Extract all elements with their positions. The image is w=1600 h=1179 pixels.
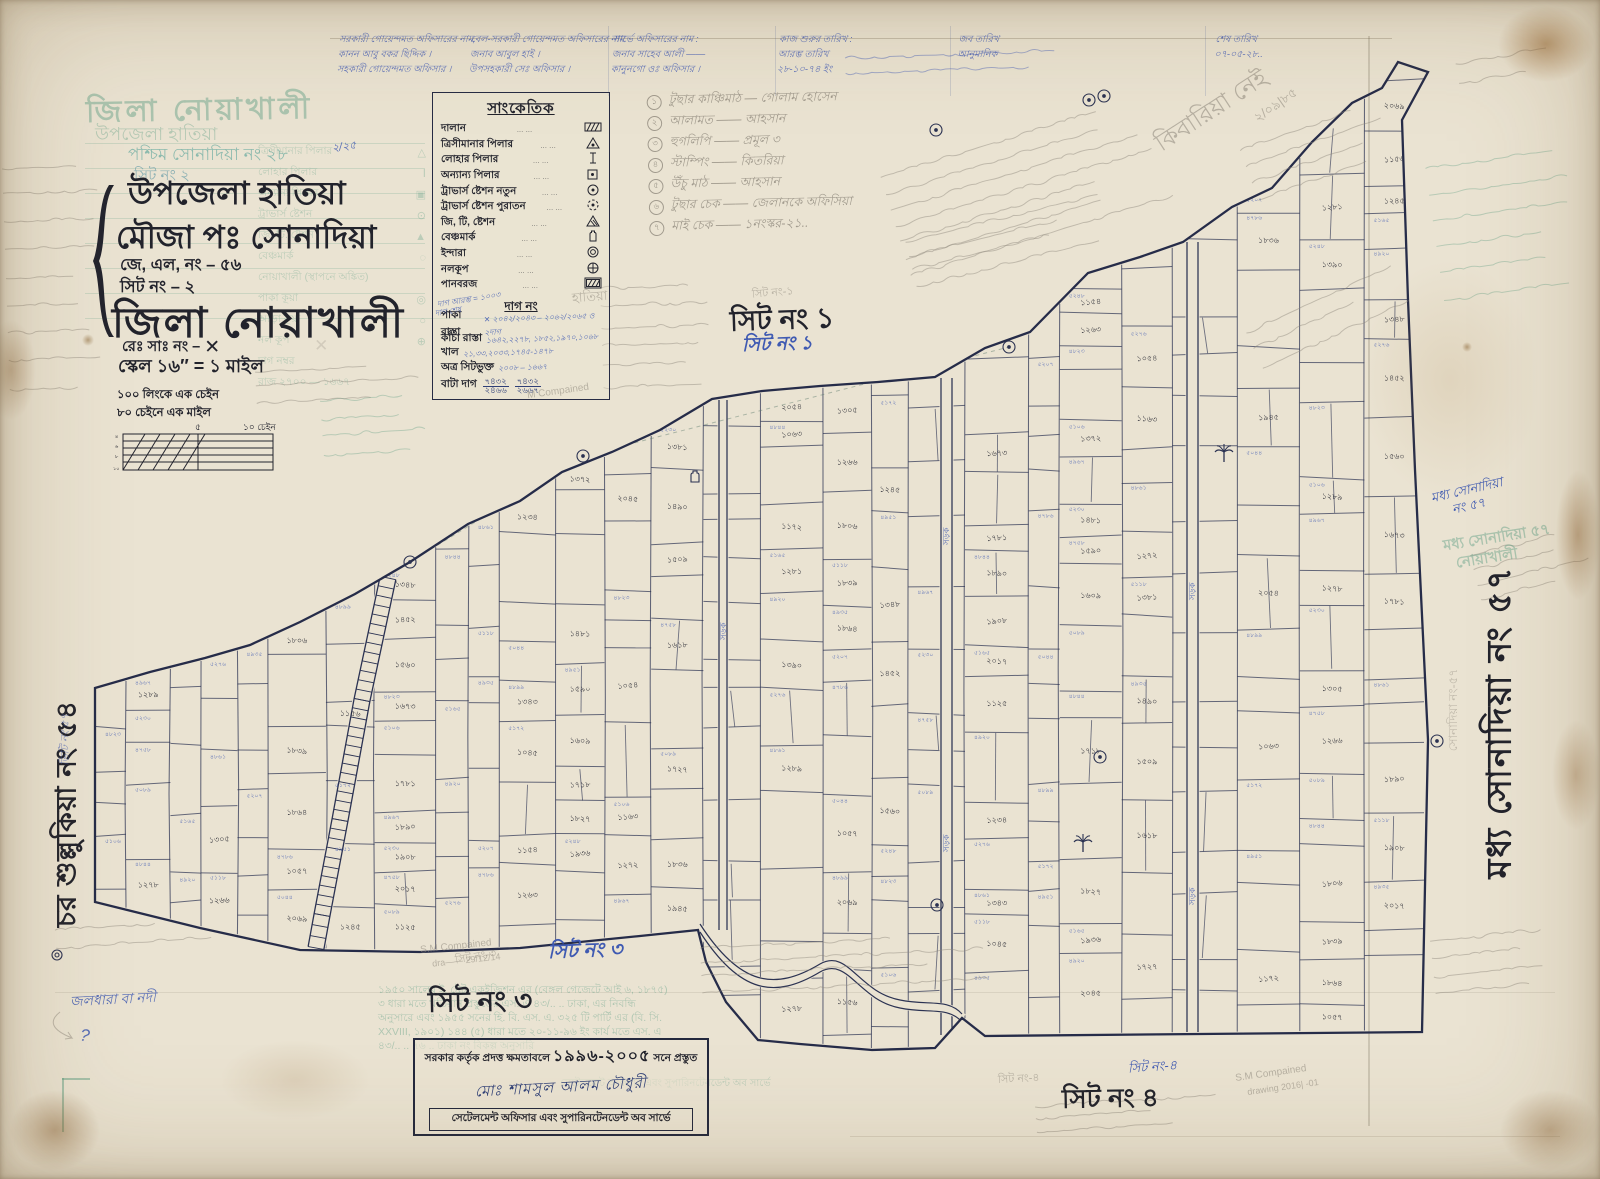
table-cell-text: ০৭-০৫-২৮.. [1214, 47, 1264, 62]
svg-text:১২৭২: ১২৭২ [617, 860, 638, 870]
svg-text:১২৭৮: ১২৭৮ [138, 880, 160, 889]
svg-text:৫২৪৮: ৫২৪৮ [1309, 243, 1325, 250]
svg-text:৫১৭২: ৫১৭২ [1038, 863, 1054, 870]
table-divider [775, 26, 776, 96]
svg-text:৪৯৫১: ৪৯৫১ [880, 514, 896, 521]
svg-text:৫০৪৪: ৫০৪৪ [1038, 653, 1054, 660]
table-column: জব তারিখআনুমানিক [957, 32, 1000, 62]
svg-text:১৩৯০: ১৩৯০ [1322, 260, 1343, 270]
svg-text:১৩০৫: ১৩০৫ [209, 834, 230, 844]
table-cell-text: ২৮-১০-৭৪ ইং [776, 62, 850, 77]
legend-dots: ... ... [513, 141, 583, 150]
svg-text:সড়ক: সড়ক [1187, 886, 1197, 906]
svg-text:১১৭২: ১১৭২ [1258, 973, 1279, 984]
svg-text:৫২৭৬: ৫২৭৬ [974, 841, 990, 848]
svg-text:১৯০৮: ১৯০৮ [395, 852, 417, 862]
svg-text:৪৮৯৯: ৪৮৯৯ [1038, 787, 1054, 794]
svg-text:১৮২৭: ১৮২৭ [1080, 886, 1101, 897]
legend-item-label: নলকূপ [441, 262, 469, 279]
circle-dot-icon [577, 450, 589, 462]
bata-fraction: ৭৪৩২২৪৬৬ [483, 377, 509, 394]
svg-text:৫১৬৫: ৫১৬৫ [1069, 928, 1085, 935]
svg-text:৪৯২০: ৪৯২০ [1069, 958, 1085, 965]
svg-text:১৫০৯: ১৫০৯ [1137, 757, 1158, 766]
svg-text:১৮৯০: ১৮৯০ [986, 568, 1007, 578]
svg-text:৫২৪৮: ৫২৪৮ [565, 838, 581, 845]
svg-text:৪৮৯৯: ৪৮৯৯ [832, 874, 848, 881]
iron-pillar-icon [583, 151, 603, 165]
pencil-list-item: ৭মাই চেক —— ১নংস্কর-২১.. [649, 214, 853, 239]
svg-text:৫২৩০: ৫২৩০ [384, 845, 400, 852]
svg-text:১৬৭৩: ১৬৭৩ [986, 448, 1007, 458]
double-circle-icon [583, 245, 603, 259]
svg-text:৪৮২৩: ৪৮২৩ [105, 731, 121, 738]
svg-text:৫১০৬: ৫১০৬ [1069, 424, 1085, 431]
scale-bar: ৫ ১০ চেইন ৪৬৮১০ [105, 420, 295, 480]
svg-text:১২৪৫: ১২৪৫ [340, 923, 361, 932]
svg-text:৪৮৬১: ৪৮৬১ [974, 892, 990, 899]
svg-text:১৩৪৩: ১৩৪৩ [986, 898, 1007, 907]
svg-text:১০৫৭: ১০৫৭ [286, 867, 307, 876]
svg-text:১৮৩৯: ১৮৩৯ [286, 745, 307, 756]
svg-text:১৬১৮: ১৬১৮ [1136, 831, 1158, 841]
svg-text:৪৭৮৬: ৪৭৮৬ [277, 853, 293, 860]
svg-text:১০: ১০ [113, 466, 120, 472]
svg-text:৫১১৮: ৫১১৮ [210, 875, 226, 882]
legend-item-label: ট্রাভার্স ষ্টেশন নতুন [441, 184, 516, 201]
list-number-badge: ৫ [648, 178, 663, 193]
sheet-3-label: সিট নং ৩ [428, 979, 533, 1028]
list-number-badge: ৬ [649, 199, 664, 214]
svg-text:১৯০৮: ১৯০৮ [1384, 843, 1406, 853]
svg-text:১৩৮১: ১৩৮১ [667, 442, 688, 452]
svg-text:৫১৬৫: ৫১৬৫ [179, 818, 195, 825]
svg-text:৫২০৭: ৫২০৭ [832, 653, 848, 660]
legend-item-label: পানবরজ [441, 277, 477, 294]
svg-text:৫১০৬: ৫১০৬ [384, 724, 400, 731]
svg-text:১২৭৮: ১২৭৮ [781, 1004, 803, 1014]
table-column: বেল-সরকারী গোয়েন্দমত অফিসারের নামজনাব আ… [468, 32, 624, 77]
svg-text:৪: ৪ [115, 434, 118, 440]
svg-text:৫০৪৪: ৫০৪৪ [832, 798, 848, 805]
right-margin-pencil-note: সোনাদিয়া নং-৫৭ [1445, 635, 1465, 785]
svg-text:৫১৬৫: ৫১৬৫ [974, 649, 990, 656]
svg-text:৪৮৪৪: ৪৮৪৪ [769, 424, 785, 431]
svg-text:১২৮৯: ১২৮৯ [781, 763, 802, 773]
svg-text:৪৯২০: ৪৯২০ [1373, 251, 1389, 258]
svg-text:১৯০৮: ১৯০৮ [986, 616, 1008, 626]
svg-text:১৬০৯: ১৬০৯ [1080, 591, 1101, 601]
svg-text:১২৭৮: ১২৭৮ [1321, 583, 1343, 594]
svg-text:১৩৪৮: ১৩৪৮ [394, 580, 416, 591]
svg-text:৪৮৪৪: ৪৮৪৪ [445, 553, 461, 560]
svg-text:৫১৭২: ৫১৭২ [508, 725, 524, 732]
circle-dashed-icon [583, 198, 603, 212]
svg-text:৫২৭৬: ৫২৭৬ [210, 661, 226, 668]
svg-text:৫১৭২: ৫১৭২ [880, 400, 896, 407]
svg-text:৫২৭৬: ৫২৭৬ [1373, 342, 1389, 349]
svg-text:১০৪৫: ১০৪৫ [986, 939, 1007, 949]
legend-item-label: দালান [441, 121, 466, 138]
svg-text:১৪৫২: ১৪৫২ [1384, 374, 1405, 383]
list-number-badge: ১ [647, 94, 662, 109]
legend-dots: ... ... [526, 203, 583, 212]
svg-text:১৩৭২: ১৩৭২ [569, 474, 590, 484]
svg-text:৪৯৩৫: ৪৯৩৫ [832, 609, 848, 616]
svg-text:১৮৩৬: ১৮৩৬ [1258, 236, 1279, 246]
svg-text:৪৯৫১: ৪৯৫১ [1246, 853, 1262, 860]
svg-text:৪৮৯৯: ৪৮৯৯ [1246, 632, 1262, 639]
svg-text:৬: ৬ [115, 444, 119, 450]
benchmark-icon [691, 471, 699, 482]
table-cell-text: জনাব আবুল হাই । [469, 47, 623, 62]
legend-item-label: লোহার পিলার [441, 152, 498, 169]
scale-bar-mid-label: ৫ [195, 422, 201, 432]
svg-text:৪৯৬৭: ৪৯৬৭ [613, 897, 629, 904]
benchmark-icon [583, 229, 603, 243]
svg-text:৫২৩০: ৫২৩০ [1069, 506, 1085, 513]
svg-text:৪৯৩৫: ৪৯৩৫ [1373, 884, 1389, 891]
table-divider [950, 26, 951, 96]
svg-text:৪৮২৩: ৪৮২৩ [384, 693, 400, 700]
svg-text:১২৬৩: ১২৬৩ [517, 890, 538, 900]
list-number-badge: ৩ [647, 136, 662, 151]
svg-text:৪৭৫৮: ৪৭৫৮ [135, 746, 151, 753]
svg-text:১৮৩৯: ১৮৩৯ [837, 578, 858, 588]
circle-dot-icon [583, 183, 603, 197]
circle-cross-icon [583, 261, 603, 275]
dag-row-value: ২০০৮ – ১৬৬৭ [498, 361, 548, 376]
bata-dag-label: বাটা দাগ [441, 377, 477, 394]
svg-text:৫১০৬: ৫১০৬ [613, 801, 629, 808]
stamp-line1-pre: সরকার কর্তৃক প্রদত্ত ক্ষমতাবলে [425, 1052, 550, 1064]
svg-text:৫০৮৯: ৫০৮৯ [917, 789, 933, 796]
svg-text:১৭২৭: ১৭২৭ [1136, 962, 1157, 972]
legend-items: দালান... ...ত্রিসীমানার পিলার... ...লোহা… [433, 122, 609, 294]
svg-text:৫১১৮: ৫১১৮ [1373, 817, 1389, 824]
svg-text:৫২৩০: ৫২৩০ [1309, 607, 1325, 614]
svg-text:৫২০৭: ৫২০৭ [246, 792, 262, 799]
annotation: সিট নং-১ [751, 282, 794, 305]
svg-text:৪৮৬১: ৪৮৬১ [769, 747, 785, 754]
svg-text:১২৪৫: ১২৪৫ [1384, 196, 1405, 205]
dag-row-label: অত্র সিটভুক্ত [441, 360, 494, 377]
svg-text:৫০৮৯: ৫০৮৯ [135, 787, 151, 794]
title-scale: স্কেল ১৬″ = ১ মাইল [118, 352, 264, 383]
officer-signature: মোঃ শামসুল আলম চৌধুরী [415, 1068, 708, 1108]
svg-text:১২৩৪: ১২৩৪ [986, 815, 1007, 824]
legend-dots: ... ... [466, 125, 583, 134]
dag-row: কাঁচা রাস্তা১৬৪২,২২৭৮, ১৮৫২,১৯৭০,১০৬৮ [433, 332, 609, 347]
svg-text:৫১৬৫: ৫১৬৫ [769, 552, 785, 559]
svg-text:১২৭২: ১২৭২ [1136, 550, 1158, 561]
annotation: জলধারা বা নদী [69, 986, 156, 1014]
svg-text:৫০৮৯: ৫০৮৯ [1069, 629, 1085, 636]
svg-text:৫১৭২: ৫১৭২ [1246, 782, 1262, 789]
svg-text:১৪৮১: ১৪৮১ [570, 629, 591, 638]
svg-text:৫২৩০: ৫২৩০ [135, 715, 151, 722]
svg-text:৪৯২০: ৪৯২০ [769, 596, 785, 603]
stamp-line-1: সরকার কর্তৃক প্রদত্ত ক্ষমতাবলে ১৯৯৬-২০০৫… [415, 1043, 707, 1070]
svg-text:১১৬৩: ১১৬৩ [617, 812, 638, 822]
left-margin-blue-note: ভিটি নং ৫৭ [57, 713, 76, 765]
svg-text:২০৬৯: ২০৬৯ [286, 914, 307, 924]
sheet-4-label-pencil: সিট নং-৪ [998, 1069, 1041, 1090]
svg-text:৪৯৬৭: ৪৯৬৭ [917, 589, 933, 596]
svg-text:১৮৩৬: ১৮৩৬ [667, 860, 688, 869]
svg-text:৪৭৫৮: ৪৭৫৮ [1069, 540, 1085, 547]
table-column: শেষ তারিখ০৭-০৫-২৮.. [1214, 32, 1265, 62]
svg-text:৫০৪৪: ৫০৪৪ [508, 644, 524, 651]
svg-text:৫১৬৫: ৫১৬৫ [445, 705, 461, 712]
list-number-badge: ৭ [649, 220, 664, 235]
svg-text:৫০৮৯: ৫০৮৯ [660, 750, 676, 757]
svg-text:১৫৯০: ১৫৯০ [570, 685, 591, 694]
svg-text:২০১৭: ২০১৭ [1384, 901, 1405, 911]
svg-text:৪৯৫১: ৪৯৫১ [335, 846, 351, 853]
scale-bar-right-label: ১০ চেইন [243, 422, 276, 432]
svg-text:১৮৯০: ১৮৯০ [1384, 774, 1405, 784]
svg-text:১১২৫: ১১২৫ [395, 922, 416, 932]
reg-cross-mark-faint: ✕ [314, 336, 328, 355]
svg-text:১৫৬০: ১৫৬০ [879, 806, 900, 816]
svg-text:১০৫৭: ১০৫৭ [837, 829, 858, 839]
road-labels: সড়কসড়কসড়কসড়কসড়ক [718, 526, 1197, 906]
svg-text:১১২৫: ১১২৫ [986, 699, 1007, 708]
svg-text:৪৯৫১: ৪৯৫১ [565, 667, 581, 674]
dag-row-value: ২১,৩৩,২০৩৩,১৭৪৫-১৪৭৮ [462, 346, 553, 362]
legend-dots: ... ... [475, 234, 583, 243]
svg-text:৪৮৬১: ৪৮৬১ [210, 753, 226, 760]
svg-text:১৭৮১: ১৭৮১ [1384, 596, 1405, 606]
legend-item-label: অন্যান্য পিলার [441, 168, 500, 185]
svg-text:৫১১৮: ৫১১৮ [832, 562, 848, 569]
sheet-1-label-blue: সিট নং ১ [741, 329, 813, 363]
svg-text:৪৭৫৮: ৪৭৫৮ [384, 874, 400, 881]
palm-icon [1215, 444, 1233, 462]
svg-text:সড়ক: সড়ক [718, 621, 728, 641]
svg-text:১০৫৭: ১০৫৭ [1322, 1012, 1343, 1022]
svg-text:২০১৭: ২০১৭ [986, 656, 1007, 667]
svg-text:৫২৭৬: ৫২৭৬ [445, 899, 461, 906]
svg-text:৫২৪৮: ৫২৪৮ [880, 847, 896, 854]
svg-text:১১৫৬: ১১৫৬ [1384, 154, 1405, 164]
legend-dots: ... ... [500, 172, 583, 181]
svg-text:১১৭২: ১১৭২ [781, 522, 802, 533]
svg-text:১২৪৫: ১২৪৫ [879, 485, 900, 495]
svg-text:৪৮২৩: ৪৮২৩ [880, 878, 896, 885]
svg-text:২০৬৯: ২০৬৯ [837, 898, 858, 907]
triangle-dot-icon [583, 136, 603, 150]
legend-dots: ... ... [516, 188, 583, 197]
table-cell-text: শেষ তারিখ [1215, 32, 1265, 47]
svg-text:৫১১৮: ৫১১৮ [974, 918, 990, 925]
svg-text:১৫৬০: ১৫৬০ [1384, 452, 1405, 462]
svg-text:১২৩৪: ১২৩৪ [517, 512, 538, 522]
svg-text:১৩৪৮: ১৩৪৮ [1384, 315, 1406, 325]
chain-note-1: ১০০ লিংকে এক চেইন [117, 386, 219, 405]
table-column: সরকারী গোয়েন্দমত অফিসারের নাম,কানন আবু … [336, 32, 476, 77]
table-divider [1205, 26, 1206, 96]
circle-dot-icon [1003, 341, 1015, 353]
legend-item-label: ত্রিসীমানার পিলার [441, 137, 513, 154]
svg-text:৪৭৫৮: ৪৭৫৮ [1309, 710, 1325, 717]
svg-text:১৩৭২: ১৩৭২ [1080, 434, 1101, 444]
svg-text:১৮৯০: ১৮৯০ [395, 822, 416, 832]
svg-text:১০৬৩: ১০৬৩ [1258, 741, 1279, 751]
svg-text:১৫৯০: ১৫৯০ [1080, 546, 1101, 556]
svg-text:৪৯৩৫: ৪৯৩৫ [1131, 681, 1147, 688]
svg-text:২০৪৫: ২০৪৫ [617, 494, 638, 504]
sheet-3-label-blue: সিট নং ৩ [547, 935, 623, 971]
table-cell-text: আনুমানিক [957, 47, 999, 62]
svg-text:৪৮২৩: ৪৮২৩ [613, 595, 629, 602]
svg-text:১৬৭৩: ১৬৭৩ [1384, 530, 1405, 540]
svg-text:১৫৬০: ১৫৬০ [395, 660, 416, 670]
svg-text:১৮৩৯: ১৮৩৯ [1322, 937, 1343, 947]
svg-text:১৩০৫: ১৩০৫ [1322, 684, 1343, 694]
svg-text:৫২০৭: ৫২০৭ [1038, 361, 1054, 368]
svg-text:৫২৭৬: ৫২৭৬ [769, 692, 785, 699]
svg-text:৪৭৮৬: ৪৭৮৬ [1246, 215, 1262, 222]
svg-text:১২৬৬: ১২৬৬ [1322, 736, 1343, 745]
svg-text:১৪৮১: ১৪৮১ [1080, 515, 1101, 525]
svg-text:৪৯৩৫: ৪৯৩৫ [478, 680, 494, 687]
table-cell-text: সহকারী গোয়েন্দমত অফিসার । [336, 62, 474, 77]
pencil-numbered-list: ১টুছার কাঞ্চিমাঠ — গোলাম হোসেন২আলামত —— … [646, 88, 852, 239]
svg-text:৪৮৪৪: ৪৮৪৪ [1309, 822, 1325, 829]
svg-text:১২৬৩: ১২৬৩ [1080, 325, 1101, 335]
stamp-line-2: সেটেলমেন্ট অফিসার এবং সুপারিনটেনডেন্ট অব… [429, 1108, 693, 1131]
circle-dot-icon [930, 124, 942, 136]
svg-text:৪৯৬৭: ৪৯৬৭ [135, 680, 151, 687]
svg-text:১৭২৭: ১৭২৭ [667, 764, 688, 774]
svg-text:৫১০৬: ৫১০৬ [880, 972, 896, 979]
list-number-badge: ২ [647, 115, 662, 130]
dag-row: অত্র সিটভুক্ত২০০৮ – ১৬৬৭ [433, 361, 609, 376]
svg-text:৪৯২০: ৪৯২০ [179, 877, 195, 884]
svg-text:১৮২৭: ১৮২৭ [569, 814, 590, 824]
svg-text:১১৬৩: ১১৬৩ [1136, 414, 1157, 425]
svg-text:৪৯৬৭: ৪৯৬৭ [1309, 517, 1325, 524]
svg-text:৫১৭২: ৫১৭২ [335, 782, 351, 789]
svg-text:৪৮২৩: ৪৮২৩ [1069, 348, 1085, 355]
svg-text:৫০৪৪: ৫০৪৪ [1246, 449, 1262, 456]
svg-text:১৮৬৪: ১৮৬৪ [286, 808, 307, 817]
legend-dots: ... ... [469, 266, 583, 275]
svg-text:১২৮৯: ১২৮৯ [138, 690, 159, 699]
square-dot-icon [583, 167, 603, 181]
table-cell-text: জব তারিখ [958, 32, 1000, 47]
legend-title: সাংকেতিক [433, 97, 609, 122]
svg-text:১৪৯০: ১৪৯০ [1136, 696, 1157, 706]
table-cell-text: সার্ভে অফিসারের নাম : [613, 32, 707, 47]
svg-text:১৪৯০: ১৪৯০ [667, 502, 688, 512]
svg-text:৫১১৮: ৫১১৮ [1131, 581, 1147, 588]
svg-text:৪৭৫৮: ৪৭৫৮ [917, 717, 933, 724]
svg-text:৪৯৬৭: ৪৯৬৭ [384, 814, 400, 821]
svg-text:১৮৬৪: ১৮৬৪ [1321, 978, 1342, 988]
svg-text:১৫০৯: ১৫০৯ [667, 555, 688, 565]
svg-text:৪৮৯৯: ৪৮৯৯ [508, 684, 524, 691]
svg-text:১৬৭৩: ১৬৭৩ [395, 702, 416, 712]
svg-text:৫০৮৯: ৫০৮৯ [1309, 777, 1325, 784]
legend-dots: ... ... [495, 219, 583, 228]
svg-text:৪৯২০: ৪৯২০ [974, 734, 990, 741]
svg-text:২০৪৫: ২০৪৫ [1080, 989, 1101, 998]
svg-text:সড়ক: সড়ক [1187, 581, 1197, 601]
svg-text:৪৯৩৫: ৪৯৩৫ [246, 651, 262, 658]
svg-text:১৩৪৩: ১৩৪৩ [517, 697, 538, 706]
svg-text:১৩৮১: ১৩৮১ [1136, 592, 1157, 602]
svg-text:১৭৮১: ১৭৮১ [395, 779, 416, 788]
svg-text:৮: ৮ [115, 454, 119, 460]
table-cell-text: জনাব সাহেব আলী —— [611, 47, 705, 62]
svg-text:১৯৪৫: ১৯৪৫ [1258, 413, 1279, 423]
double-circle-icon [52, 950, 62, 960]
scanned-mouza-map-sheet: { "colors":{"paper":"#eae3d2","ink":"#2b… [0, 0, 1600, 1179]
svg-text:৫২০৭: ৫২০৭ [478, 845, 494, 852]
svg-text:২০১৭: ২০১৭ [395, 884, 416, 894]
legend-box: সাংকেতিক দালান... ...ত্রিসীমানার পিলার..… [432, 92, 610, 400]
svg-text:৫১১৮: ৫১১৮ [478, 630, 494, 637]
svg-text:১৭১৮: ১৭১৮ [570, 780, 592, 789]
table-cell-text: কানন আবু বকর ছিদ্দিক । [337, 47, 475, 62]
svg-text:১২৬৬: ১২৬৬ [837, 458, 858, 467]
svg-text:২০৬৯: ২০৬৯ [1384, 101, 1405, 111]
annotation: ২/২৫ [331, 136, 358, 158]
svg-text:১৯৩৬: ১৯৩৬ [1080, 935, 1101, 946]
svg-text:৪৮২৩: ৪৮২৩ [1309, 405, 1325, 412]
triangle-hatched-icon [583, 214, 603, 228]
svg-text:৪৮৬১: ৪৮৬১ [478, 524, 494, 531]
svg-text:৫০৮৯: ৫০৮৯ [384, 909, 400, 916]
authority-stamp-box: সরকার কর্তৃক প্রদত্ত ক্ষমতাবলে ১৯৯৬-২০০৫… [413, 1038, 709, 1136]
table-cell-text: আরম্ভ তারিখ [777, 47, 851, 62]
palm-icon [1074, 834, 1092, 852]
svg-text:সড়ক: সড়ক [941, 833, 951, 853]
svg-text:১১৫৬: ১১৫৬ [340, 709, 361, 719]
svg-text:১৪৫২: ১৪৫২ [879, 669, 900, 678]
legend-item-label: বেঞ্চমার্ক [441, 230, 475, 247]
svg-text:১৮০৬: ১৮০৬ [836, 521, 857, 532]
svg-text:৫২৩০: ৫২৩০ [917, 652, 933, 659]
svg-text:১০৫৪: ১০৫৪ [617, 680, 638, 691]
svg-text:৪৭৮৬: ৪৭৮৬ [832, 684, 848, 691]
svg-text:সড়ক: সড়ক [941, 526, 951, 546]
svg-text:৪৯২০: ৪৯২০ [445, 781, 461, 788]
hatched-rect-icon [583, 120, 603, 134]
legend-dots: ... ... [498, 156, 583, 165]
svg-text:১১৫৬: ১১৫৬ [836, 997, 857, 1007]
svg-text:১৮০৬: ১৮০৬ [286, 636, 307, 645]
svg-text:১৩০৫: ১৩০৫ [837, 405, 858, 415]
svg-text:১২৬৬: ১২৬৬ [209, 896, 230, 906]
svg-text:১৩৪৮: ১৩৪৮ [879, 599, 901, 609]
table-cell-text: কানুনগো ওঃ অফিসার । [610, 62, 704, 77]
svg-text:৫১৬৫: ৫১৬৫ [1373, 217, 1389, 224]
svg-text:১৯৩৬: ১৯৩৬ [569, 848, 590, 859]
svg-text:৫২৪৮: ৫২৪৮ [1069, 292, 1085, 299]
svg-text:৪৭৫৮: ৪৭৫৮ [660, 622, 676, 629]
svg-text:২০৫৪: ২০৫৪ [1258, 588, 1279, 598]
list-number-badge: ৪ [648, 157, 663, 172]
legend-dots: ... ... [466, 250, 583, 259]
legend-item-label: জি, টি, ষ্টেশন [441, 215, 495, 232]
svg-text:৪৭৮৬: ৪৭৮৬ [1038, 512, 1054, 519]
legend-item-label: ইন্দারা [441, 246, 466, 263]
table-cell-text: উপসহকারী সেঃ অফিসার । [468, 62, 622, 77]
